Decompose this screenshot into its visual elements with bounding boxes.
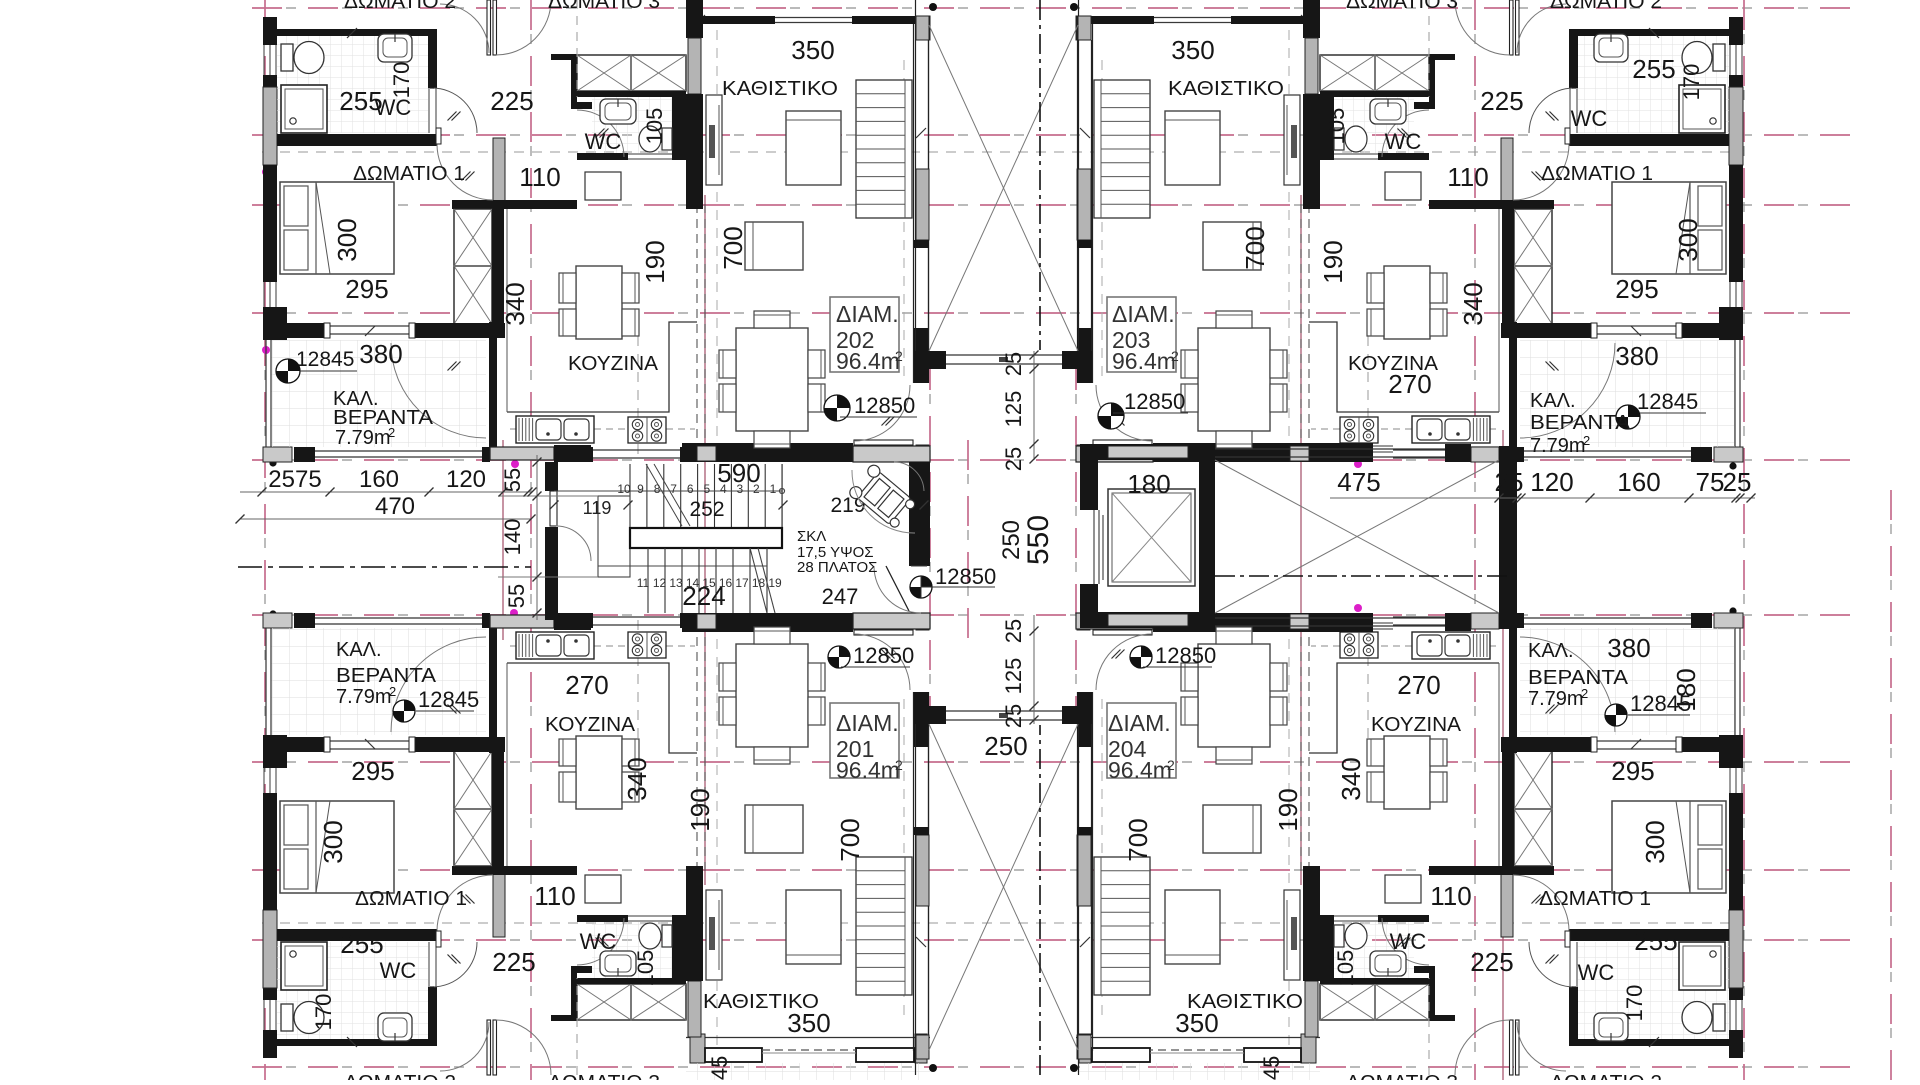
svg-text:75: 75	[1696, 467, 1725, 497]
svg-text:ΔΩΜΑΤΙΟ 3: ΔΩΜΑΤΙΟ 3	[1346, 0, 1458, 13]
svg-text:WC: WC	[1578, 960, 1615, 985]
svg-text:470: 470	[375, 493, 415, 520]
svg-text:25: 25	[1001, 619, 1026, 643]
svg-text:ΔΙΑΜ.: ΔΙΑΜ.	[836, 710, 899, 736]
svg-text:300: 300	[332, 218, 362, 261]
svg-text:295: 295	[1611, 756, 1654, 786]
svg-text:ΚΑΘΙΣΤΙΚΟ: ΚΑΘΙΣΤΙΚΟ	[1168, 78, 1284, 100]
svg-text:2: 2	[895, 757, 903, 773]
svg-text:12850: 12850	[853, 643, 914, 668]
svg-text:252: 252	[689, 498, 724, 521]
svg-text:2: 2	[895, 348, 903, 364]
svg-text:12845: 12845	[1637, 389, 1698, 414]
svg-text:105: 105	[633, 950, 658, 987]
svg-text:28 ΠΛΑΤΟΣ: 28 ΠΛΑΤΟΣ	[797, 559, 877, 576]
svg-text:55: 55	[504, 584, 529, 608]
svg-text:345: 345	[1259, 1056, 1284, 1080]
svg-text:25: 25	[1723, 467, 1752, 497]
svg-text:12850: 12850	[935, 564, 996, 589]
svg-text:WC: WC	[1385, 129, 1422, 154]
svg-text:270: 270	[1388, 369, 1431, 399]
svg-text:225: 225	[490, 86, 533, 116]
svg-text:295: 295	[1615, 274, 1658, 304]
svg-text:120: 120	[1530, 467, 1573, 497]
svg-text:ΔΩΜΑΤΙΟ 2: ΔΩΜΑΤΙΟ 2	[344, 0, 456, 13]
svg-text:110: 110	[534, 881, 575, 911]
svg-text:17: 17	[735, 576, 749, 590]
svg-text:105: 105	[1333, 950, 1358, 987]
svg-text:2: 2	[1167, 757, 1175, 773]
svg-text:ΔΙΑΜ.: ΔΙΑΜ.	[1112, 301, 1175, 327]
svg-text:225: 225	[492, 947, 535, 977]
svg-text:ΚΑΛ.: ΚΑΛ.	[336, 639, 382, 661]
svg-text:270: 270	[565, 670, 608, 700]
svg-text:2: 2	[389, 684, 396, 699]
svg-text:12850: 12850	[1124, 389, 1185, 414]
svg-text:ΔΩΜΑΤΙΟ 1: ΔΩΜΑΤΙΟ 1	[355, 888, 467, 910]
svg-text:ΚΑΛ.: ΚΑΛ.	[1530, 390, 1576, 412]
svg-text:ΔΩΜΑΤΙΟ 2: ΔΩΜΑΤΙΟ 2	[1550, 1072, 1662, 1080]
svg-text:225: 225	[1480, 86, 1523, 116]
svg-text:295: 295	[351, 756, 394, 786]
svg-text:700: 700	[835, 818, 865, 861]
svg-text:25: 25	[1001, 352, 1026, 376]
svg-text:140: 140	[500, 519, 525, 556]
svg-text:380: 380	[359, 339, 402, 369]
svg-text:12845: 12845	[418, 687, 479, 712]
svg-text:255: 255	[340, 929, 383, 959]
svg-text:96.4m: 96.4m	[1112, 348, 1176, 374]
svg-text:125: 125	[1001, 658, 1026, 695]
svg-text:12850: 12850	[1155, 643, 1216, 668]
svg-text:380: 380	[1615, 341, 1658, 371]
svg-text:7.79m: 7.79m	[1528, 688, 1584, 710]
svg-text:225: 225	[1470, 947, 1513, 977]
svg-text:5: 5	[703, 482, 710, 496]
svg-text:8: 8	[654, 482, 661, 496]
svg-text:295: 295	[345, 274, 388, 304]
svg-text:18: 18	[752, 576, 766, 590]
svg-text:110: 110	[519, 162, 560, 192]
svg-text:475: 475	[1337, 467, 1380, 497]
svg-text:2: 2	[1171, 348, 1179, 364]
svg-text:250: 250	[984, 731, 1027, 761]
svg-text:19: 19	[768, 576, 782, 590]
svg-text:96.4m: 96.4m	[1108, 757, 1172, 783]
svg-text:12845: 12845	[1630, 691, 1691, 716]
svg-text:700: 700	[1123, 818, 1153, 861]
svg-text:700: 700	[1240, 226, 1270, 269]
svg-text:170: 170	[311, 994, 336, 1031]
svg-text:345: 345	[707, 1056, 732, 1080]
svg-text:590: 590	[717, 458, 760, 488]
svg-text:ΔΩΜΑΤΙΟ 2: ΔΩΜΑΤΙΟ 2	[1550, 0, 1662, 13]
svg-text:110: 110	[1430, 881, 1471, 911]
svg-text:340: 340	[1336, 757, 1366, 800]
svg-text:270: 270	[1397, 670, 1440, 700]
svg-text:ΔΩΜΑΤΙΟ 1: ΔΩΜΑΤΙΟ 1	[353, 163, 465, 185]
svg-text:ΒΕΡΑΝΤΑ: ΒΕΡΑΝΤΑ	[336, 665, 437, 687]
svg-text:120: 120	[446, 466, 486, 493]
svg-text:340: 340	[1458, 282, 1488, 325]
svg-text:350: 350	[1175, 1008, 1218, 1038]
svg-text:WC: WC	[380, 958, 417, 983]
svg-text:160: 160	[359, 466, 399, 493]
svg-text:12850: 12850	[854, 393, 915, 418]
svg-text:2575: 2575	[268, 466, 321, 493]
svg-text:ΒΕΡΑΝΤΑ: ΒΕΡΑΝΤΑ	[1530, 412, 1631, 434]
svg-text:550: 550	[1022, 515, 1055, 565]
svg-text:25: 25	[1001, 447, 1026, 471]
svg-text:ΔΩΜΑΤΙΟ 1: ΔΩΜΑΤΙΟ 1	[1541, 163, 1653, 185]
svg-text:190: 190	[640, 240, 670, 283]
svg-text:ΚΑΘΙΣΤΙΚΟ: ΚΑΘΙΣΤΙΚΟ	[722, 78, 838, 100]
svg-text:247: 247	[822, 584, 859, 609]
svg-text:12845: 12845	[296, 348, 354, 371]
svg-text:380: 380	[1607, 633, 1650, 663]
svg-text:12: 12	[653, 576, 667, 590]
svg-text:ΒΕΡΑΝΤΑ: ΒΕΡΑΝΤΑ	[1528, 667, 1629, 689]
svg-text:WC: WC	[585, 129, 622, 154]
svg-text:180: 180	[1127, 469, 1170, 499]
svg-text:ΣΚΛ: ΣΚΛ	[797, 528, 826, 545]
svg-text:190: 190	[685, 788, 715, 831]
svg-text:340: 340	[500, 282, 530, 325]
svg-text:ΔΩΜΑΤΙΟ 1: ΔΩΜΑΤΙΟ 1	[1539, 888, 1651, 910]
svg-text:6: 6	[687, 482, 694, 496]
svg-text:25: 25	[1495, 467, 1524, 497]
svg-text:ΔΩΜΑΤΙΟ 3: ΔΩΜΑΤΙΟ 3	[1346, 1072, 1458, 1080]
svg-text:2: 2	[1581, 686, 1588, 701]
svg-text:WC: WC	[580, 929, 617, 954]
svg-text:700: 700	[718, 226, 748, 269]
svg-text:350: 350	[787, 1008, 830, 1038]
svg-text:350: 350	[791, 35, 834, 65]
svg-text:WC: WC	[1571, 106, 1608, 131]
svg-text:170: 170	[389, 62, 414, 99]
svg-text:300: 300	[1673, 218, 1703, 261]
svg-text:170: 170	[1679, 64, 1704, 101]
svg-text:190: 190	[1318, 240, 1348, 283]
svg-text:110: 110	[1447, 162, 1488, 192]
svg-text:255: 255	[1632, 54, 1675, 84]
svg-text:1: 1	[770, 482, 777, 496]
svg-text:96.4m: 96.4m	[836, 348, 900, 374]
svg-text:WC: WC	[1390, 929, 1427, 954]
svg-text:ΚΟΥΖΙΝΑ: ΚΟΥΖΙΝΑ	[1371, 714, 1462, 736]
svg-text:7: 7	[670, 482, 677, 496]
svg-text:160: 160	[1617, 467, 1660, 497]
svg-text:105: 105	[642, 108, 667, 145]
svg-text:ΚΟΥΖΙΝΑ: ΚΟΥΖΙΝΑ	[545, 714, 636, 736]
svg-text:ΒΕΡΑΝΤΑ: ΒΕΡΑΝΤΑ	[333, 407, 434, 429]
svg-text:13: 13	[669, 576, 683, 590]
svg-text:ΚΟΥΖΙΝΑ: ΚΟΥΖΙΝΑ	[568, 353, 659, 375]
svg-text:7.79m: 7.79m	[336, 686, 392, 708]
svg-text:25: 25	[1001, 704, 1026, 728]
svg-text:350: 350	[1171, 35, 1214, 65]
svg-text:ΔΙΑΜ.: ΔΙΑΜ.	[1108, 710, 1171, 736]
svg-text:ΔΩΜΑΤΙΟ 3: ΔΩΜΑΤΙΟ 3	[548, 1072, 660, 1080]
svg-text:10: 10	[617, 482, 631, 496]
svg-text:300: 300	[318, 820, 348, 863]
svg-text:ΔΩΜΑΤΙΟ 2: ΔΩΜΑΤΙΟ 2	[344, 1072, 456, 1080]
svg-text:96.4m: 96.4m	[836, 757, 900, 783]
svg-text:2: 2	[1583, 433, 1590, 448]
svg-text:340: 340	[622, 757, 652, 800]
svg-text:119: 119	[583, 498, 612, 518]
svg-text:125: 125	[1001, 391, 1026, 428]
svg-text:7.79m: 7.79m	[1530, 435, 1586, 457]
svg-text:55: 55	[500, 468, 525, 492]
svg-text:7.79m: 7.79m	[335, 427, 391, 449]
svg-text:9: 9	[637, 482, 644, 496]
svg-text:105: 105	[1324, 108, 1349, 145]
svg-text:ΔΩΜΑΤΙΟ 3: ΔΩΜΑΤΙΟ 3	[548, 0, 660, 13]
svg-text:190: 190	[1273, 788, 1303, 831]
svg-text:300: 300	[1640, 820, 1670, 863]
svg-text:2: 2	[388, 425, 395, 440]
svg-text:11: 11	[637, 576, 650, 590]
svg-text:250: 250	[998, 520, 1025, 560]
svg-text:255: 255	[1634, 926, 1677, 956]
svg-text:224: 224	[682, 581, 725, 611]
svg-text:170: 170	[1622, 985, 1647, 1022]
svg-text:ΚΑΛ.: ΚΑΛ.	[1528, 640, 1574, 662]
svg-text:ΔΙΑΜ.: ΔΙΑΜ.	[836, 301, 899, 327]
